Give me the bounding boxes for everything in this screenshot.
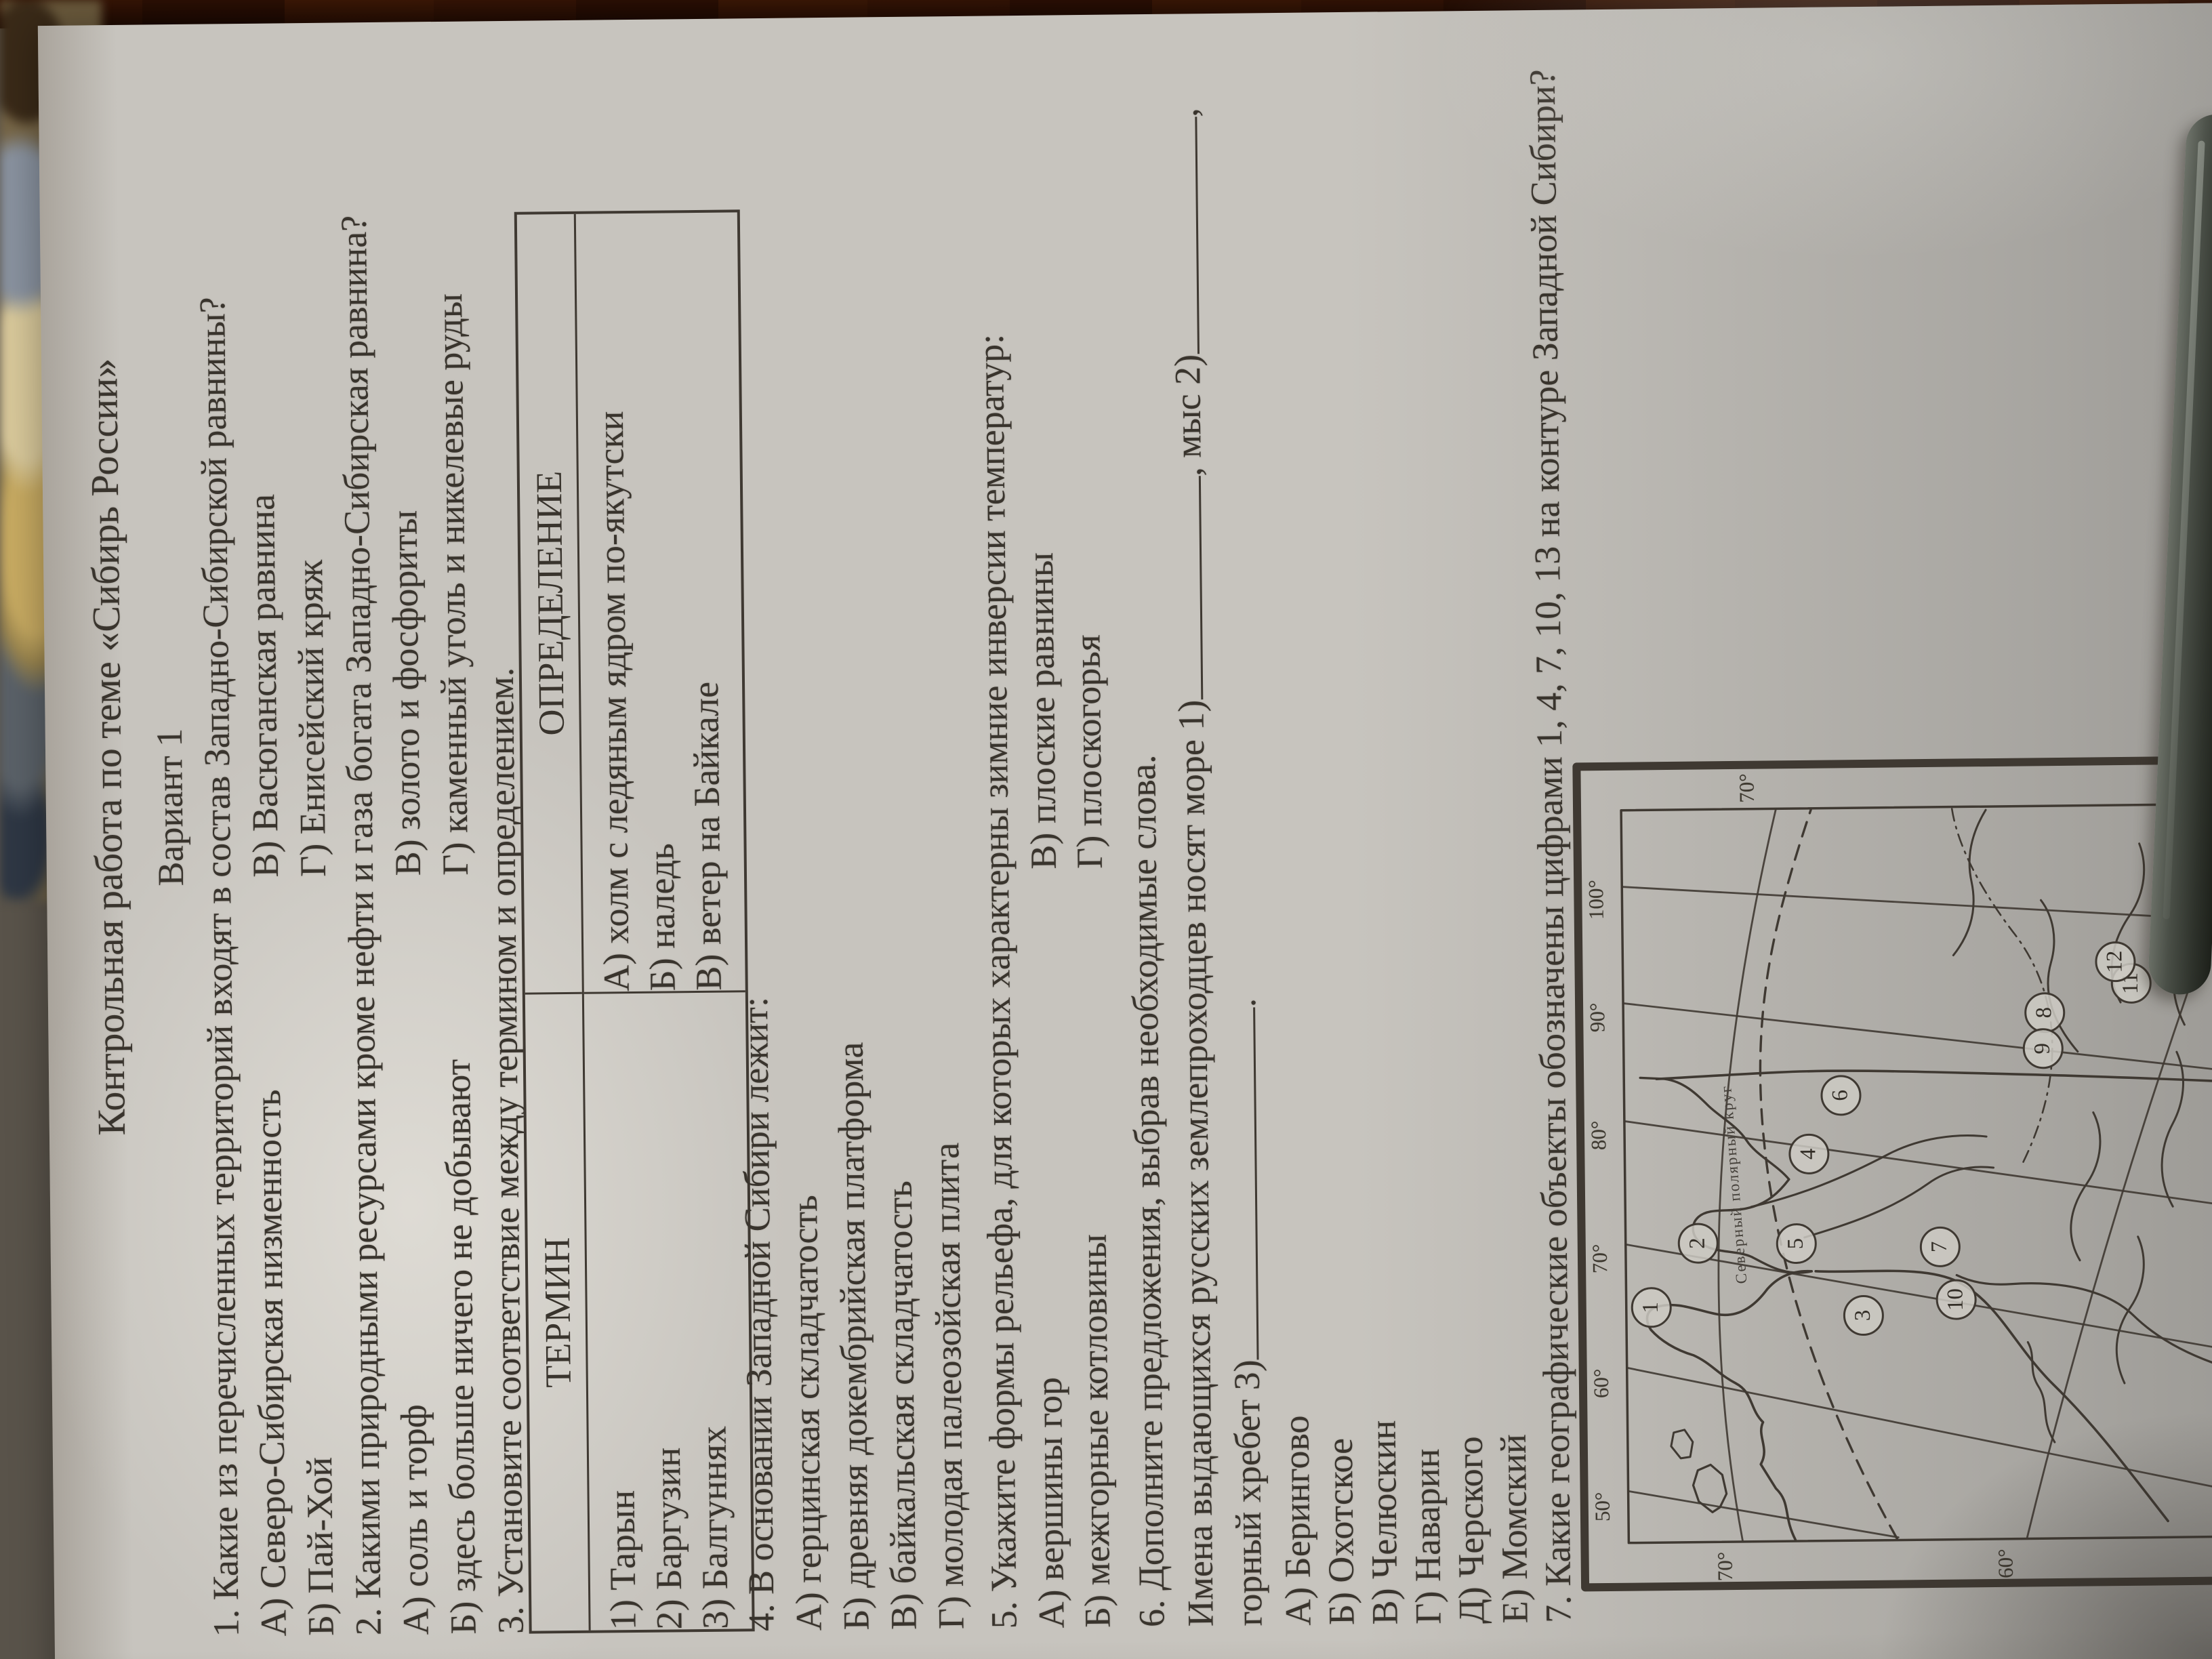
definition-b: Б) наледь bbox=[632, 213, 686, 991]
map-number-6: 6 bbox=[1820, 1075, 1862, 1116]
definition-v: В) ветер на Байкале bbox=[678, 213, 732, 991]
map-number-12: 12 bbox=[2095, 941, 2136, 983]
page-title: Контрольная работа по теме «Сибирь Росси… bbox=[76, 0, 139, 1594]
map-number-4: 4 bbox=[1788, 1134, 1830, 1175]
paper-glare bbox=[1017, 0, 2212, 610]
term-1: 1) Тарын bbox=[594, 994, 647, 1631]
table-header-definition: ОПРЕДЕЛЕНИЕ bbox=[517, 214, 582, 993]
photo-of-test-paper: Контрольная работа по теме «Сибирь Росси… bbox=[0, 0, 2212, 1659]
q6-fill2-text: горный хребет 3) bbox=[1227, 1359, 1270, 1626]
corner-shadow bbox=[1602, 1185, 2212, 1659]
table-body-row: 1) Тарын 2) Баргузин 3) Балгуннях А) хол… bbox=[576, 212, 752, 1630]
term-definition-table: ТЕРМИН ОПРЕДЕЛЕНИЕ 1) Тарын 2) Баргузин … bbox=[514, 209, 755, 1633]
q6-fill1-text: Имена выдающихся русских землепроходцев … bbox=[1170, 699, 1221, 1626]
map-number-8: 8 bbox=[2024, 992, 2066, 1033]
table-definitions-cell: А) холм с ледяным ядром по-якутски Б) на… bbox=[576, 212, 745, 991]
map-lon-label-80: 80° bbox=[1586, 1121, 1611, 1151]
q4-option-g: Г) молодая палеозойская плита bbox=[914, 111, 972, 1630]
q6-blank-3 bbox=[1246, 1007, 1258, 1359]
term-2: 2) Баргузин bbox=[640, 993, 693, 1630]
table-terms-cell: 1) Тарын 2) Баргузин 3) Балгуннях bbox=[584, 990, 752, 1631]
term-3: 3) Балгуннях bbox=[686, 992, 739, 1629]
map-lon-label-100: 100° bbox=[1584, 880, 1609, 920]
table-header-term: ТЕРМИН bbox=[525, 992, 589, 1631]
q6-fill2-end: . bbox=[1223, 998, 1263, 1008]
map-number-9: 9 bbox=[2022, 1028, 2064, 1069]
map-lat-label-right-70: 70° bbox=[1735, 773, 1759, 803]
definition-a: А) холм с ледяным ядром по-якутски bbox=[586, 213, 640, 991]
map-lon-label-90: 90° bbox=[1585, 1003, 1610, 1033]
